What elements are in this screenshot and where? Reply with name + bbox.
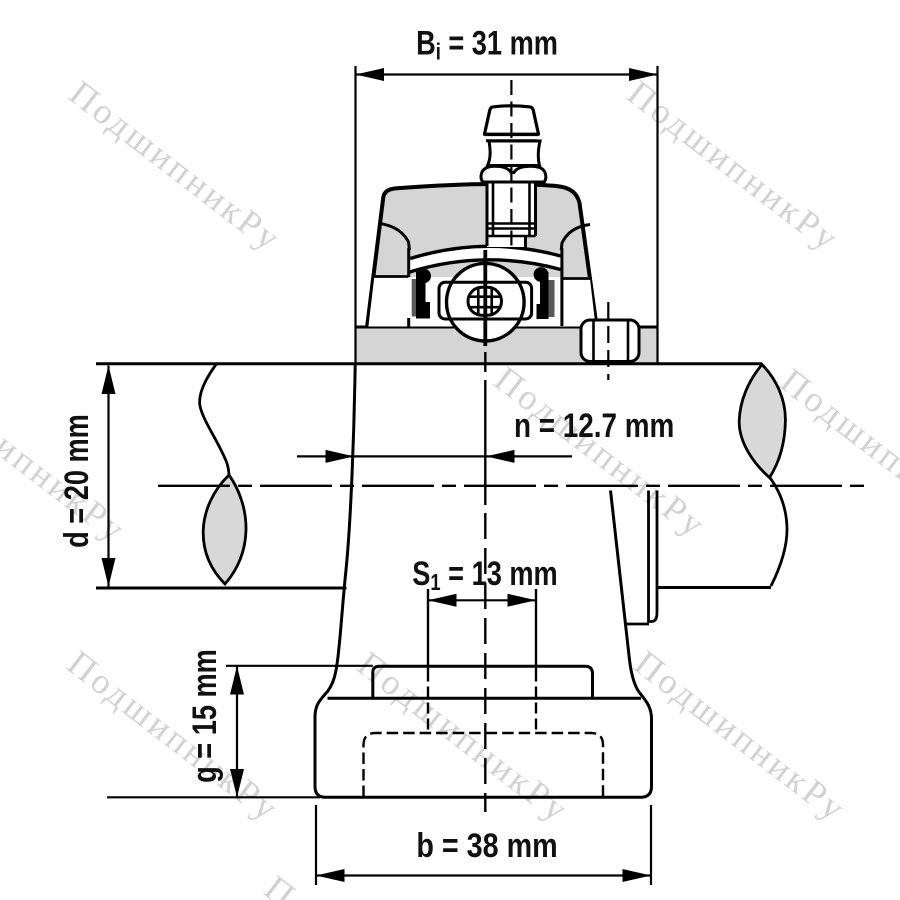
svg-text:b = 38 mm: b = 38 mm [416,827,557,865]
